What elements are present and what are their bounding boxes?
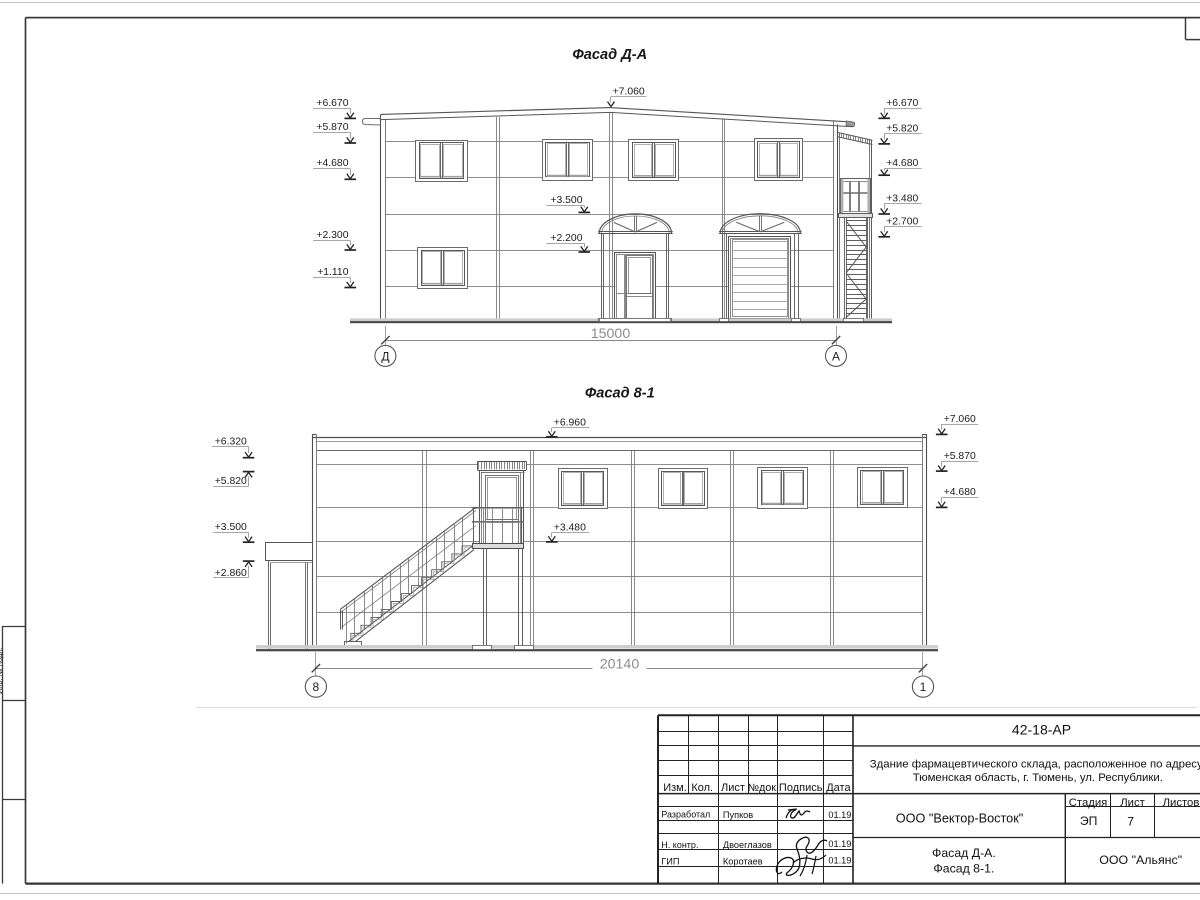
svg-text:Фасад 8-1.: Фасад 8-1. [933, 862, 994, 876]
svg-text:Кол.: Кол. [691, 782, 713, 794]
svg-text:Н. контр.: Н. контр. [661, 840, 698, 850]
svg-text:20140: 20140 [600, 657, 640, 673]
svg-text:+2.200: +2.200 [550, 233, 582, 244]
svg-text:+3.480: +3.480 [554, 522, 586, 533]
svg-text:+5.870: +5.870 [316, 122, 348, 133]
svg-text:+6.320: +6.320 [215, 436, 247, 447]
svg-text:Коротаев: Коротаев [723, 856, 763, 866]
svg-text:Лист: Лист [721, 782, 745, 794]
svg-text:+5.870: +5.870 [944, 451, 976, 462]
svg-text:01.19: 01.19 [828, 839, 851, 849]
svg-text:Двоеглазов: Двоеглазов [723, 840, 772, 850]
svg-text:Пупков: Пупков [723, 810, 753, 820]
svg-text:15000: 15000 [591, 326, 631, 342]
svg-text:ООО "Вектор-Восток": ООО "Вектор-Восток" [896, 812, 1024, 826]
svg-text:01.19: 01.19 [828, 856, 851, 866]
svg-text:+5.820: +5.820 [886, 123, 918, 134]
svg-text:Здание фармацевтического склад: Здание фармацевтического склада, располо… [870, 759, 1200, 771]
svg-text:7: 7 [1127, 815, 1134, 829]
svg-text:+2.300: +2.300 [316, 230, 348, 241]
svg-text:+4.680: +4.680 [316, 158, 348, 169]
svg-text:Д: Д [381, 349, 389, 363]
svg-text:8: 8 [313, 680, 320, 694]
svg-text:+3.500: +3.500 [215, 522, 247, 533]
svg-text:+6.670: +6.670 [316, 98, 348, 109]
svg-text:+4.680: +4.680 [944, 487, 976, 498]
svg-text:Тюменская область, г. Тюмень,: Тюменская область, г. Тюмень, ул. Респуб… [913, 772, 1163, 784]
svg-text:Лист: Лист [1120, 797, 1145, 809]
svg-text:№док.: №док. [748, 782, 779, 794]
svg-text:+7.060: +7.060 [613, 86, 645, 97]
svg-text:+6.670: +6.670 [886, 98, 918, 109]
svg-text:Фасад 8-1: Фасад 8-1 [585, 386, 655, 402]
svg-text:1: 1 [920, 680, 927, 694]
svg-text:Дата: Дата [826, 782, 851, 794]
svg-text:+2.700: +2.700 [886, 217, 918, 228]
svg-text:+6.960: +6.960 [554, 418, 586, 429]
svg-text:+7.060: +7.060 [944, 414, 976, 425]
svg-text:Разработал: Разработал [661, 810, 710, 820]
svg-text:+1.110: +1.110 [317, 267, 349, 278]
svg-text:+5.820: +5.820 [215, 476, 247, 487]
svg-text:Инв. № подл.: Инв. № подл. [0, 647, 4, 694]
svg-text:А: А [832, 349, 840, 363]
svg-text:ЭП: ЭП [1080, 814, 1098, 828]
svg-text:Листов: Листов [1163, 797, 1200, 809]
svg-text:Фасад Д-А.: Фасад Д-А. [932, 846, 996, 860]
svg-text:+2.860: +2.860 [215, 568, 247, 579]
svg-text:+3.500: +3.500 [550, 195, 582, 206]
svg-text:Подпись: Подпись [779, 782, 823, 794]
svg-text:ООО "Альянс": ООО "Альянс" [1099, 853, 1182, 867]
svg-text:+3.480: +3.480 [886, 193, 918, 204]
svg-text:+4.680: +4.680 [886, 158, 918, 169]
svg-text:Фасад Д-А: Фасад Д-А [572, 47, 647, 63]
svg-text:ГИП: ГИП [661, 856, 679, 866]
svg-text:Стадия: Стадия [1069, 797, 1108, 809]
svg-text:Изм.: Изм. [663, 782, 687, 794]
svg-text:01.19: 01.19 [828, 810, 851, 820]
svg-text:42-18-АР: 42-18-АР [1012, 722, 1071, 738]
